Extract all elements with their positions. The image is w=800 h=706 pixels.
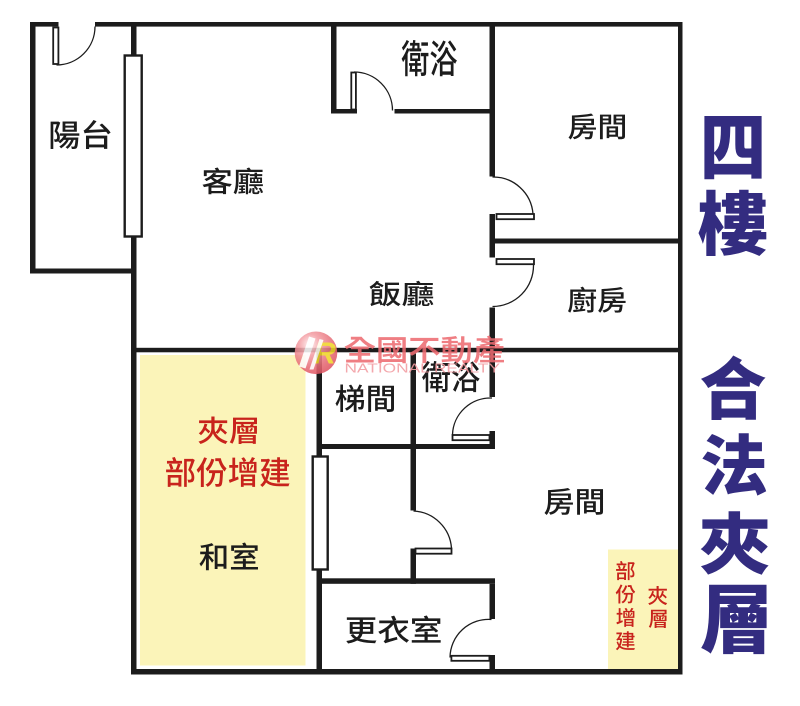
svg-text:NATIONAL REALTY: NATIONAL REALTY <box>345 361 501 376</box>
